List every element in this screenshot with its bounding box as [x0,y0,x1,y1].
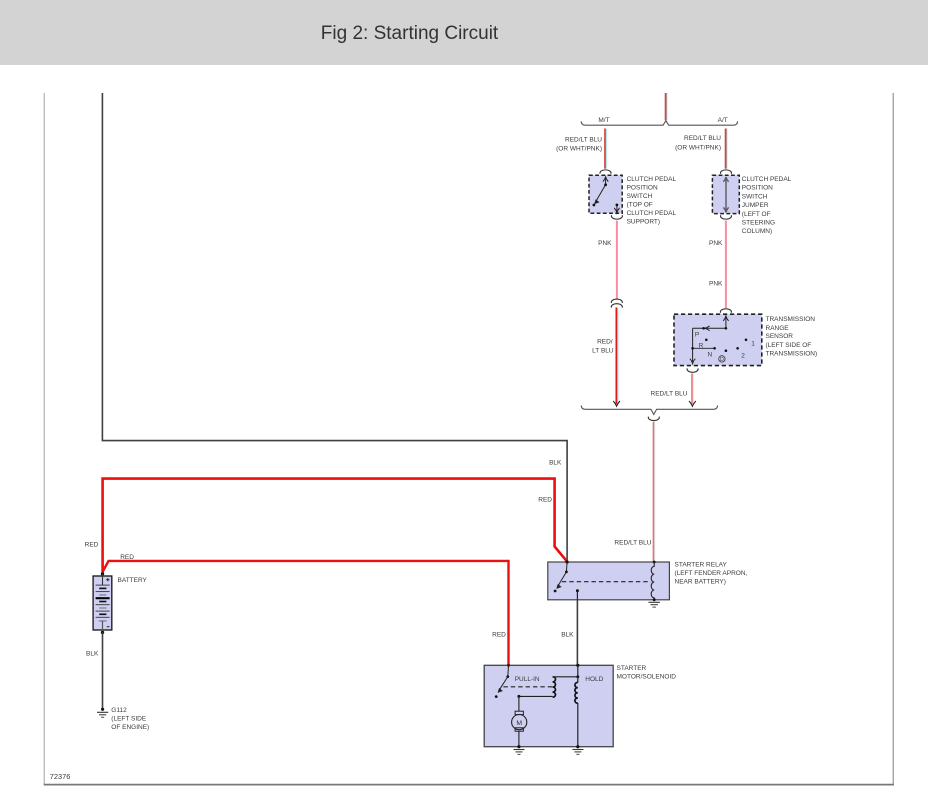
svg-text:STARTER RELAY: STARTER RELAY [675,561,728,568]
svg-text:OF ENGINE): OF ENGINE) [111,724,149,731]
svg-text:HOLD: HOLD [585,676,603,683]
svg-text:SWITCH: SWITCH [742,193,768,200]
svg-text:(LEFT OF: (LEFT OF [742,211,771,218]
svg-text:(LEFT SIDE OF: (LEFT SIDE OF [766,342,812,349]
svg-text:(LEFT SIDE: (LEFT SIDE [111,716,147,723]
svg-text:RED/: RED/ [597,339,613,346]
svg-text:RED/LT BLU: RED/LT BLU [614,540,651,547]
svg-text:CLUTCH PEDAL: CLUTCH PEDAL [627,176,677,183]
svg-text:(OR WHT/PNK): (OR WHT/PNK) [556,145,602,152]
svg-text:RED/LT BLU: RED/LT BLU [651,391,688,398]
svg-text:BATTERY: BATTERY [118,577,148,584]
svg-text:RED/LT BLU: RED/LT BLU [684,135,721,142]
svg-text:SENSOR: SENSOR [766,333,794,340]
svg-text:MOTOR/SOLENOID: MOTOR/SOLENOID [617,674,677,681]
svg-text:(OR WHT/PNK): (OR WHT/PNK) [675,145,721,152]
svg-text:SUPPORT): SUPPORT) [627,219,660,226]
svg-text:COLUMN): COLUMN) [742,228,772,235]
svg-text:(TOP OF: (TOP OF [627,202,653,209]
svg-text:RANGE: RANGE [766,325,790,332]
svg-text:SWITCH: SWITCH [627,193,653,200]
svg-text:JUMPER: JUMPER [742,202,769,209]
svg-text:CLUTCH PEDAL: CLUTCH PEDAL [627,210,677,217]
svg-text:POSITION: POSITION [742,185,773,192]
svg-text:NEAR BATTERY): NEAR BATTERY) [675,578,726,585]
svg-text:RED/LT BLU: RED/LT BLU [565,137,602,144]
svg-text:(LEFT FENDER APRON,: (LEFT FENDER APRON, [675,570,748,577]
svg-text:PNK: PNK [709,280,723,287]
svg-text:CLUTCH PEDAL: CLUTCH PEDAL [742,176,792,183]
svg-text:1: 1 [751,341,755,348]
svg-text:2: 2 [741,353,745,360]
svg-text:Fig 2: Starting Circuit: Fig 2: Starting Circuit [321,23,499,44]
svg-text:A/T: A/T [718,117,728,124]
svg-text:TRANSMISSION): TRANSMISSION) [766,351,818,358]
svg-text:POSITION: POSITION [627,185,658,192]
svg-text:TRANSMISSION: TRANSMISSION [766,316,816,323]
svg-text:BLK: BLK [549,460,562,467]
svg-text:RED: RED [85,542,99,549]
svg-text:RED: RED [120,554,134,561]
svg-text:BLK: BLK [86,650,99,657]
svg-text:PNK: PNK [709,240,723,247]
svg-text:G112: G112 [111,707,127,714]
svg-text:P: P [695,332,699,339]
svg-text:PNK: PNK [598,240,612,247]
svg-text:LT BLU: LT BLU [592,347,614,354]
svg-text:R: R [699,343,704,350]
svg-text:M: M [516,720,522,727]
svg-text:N: N [707,352,712,359]
svg-text:72376: 72376 [50,772,71,781]
svg-text:RED: RED [492,632,506,639]
svg-text:STARTER: STARTER [617,665,647,672]
svg-text:RED: RED [538,497,552,504]
svg-text:BLK: BLK [561,632,574,639]
svg-text:PULL-IN: PULL-IN [515,676,540,683]
svg-text:M/T: M/T [598,117,609,124]
svg-text:STEERING: STEERING [742,220,775,227]
